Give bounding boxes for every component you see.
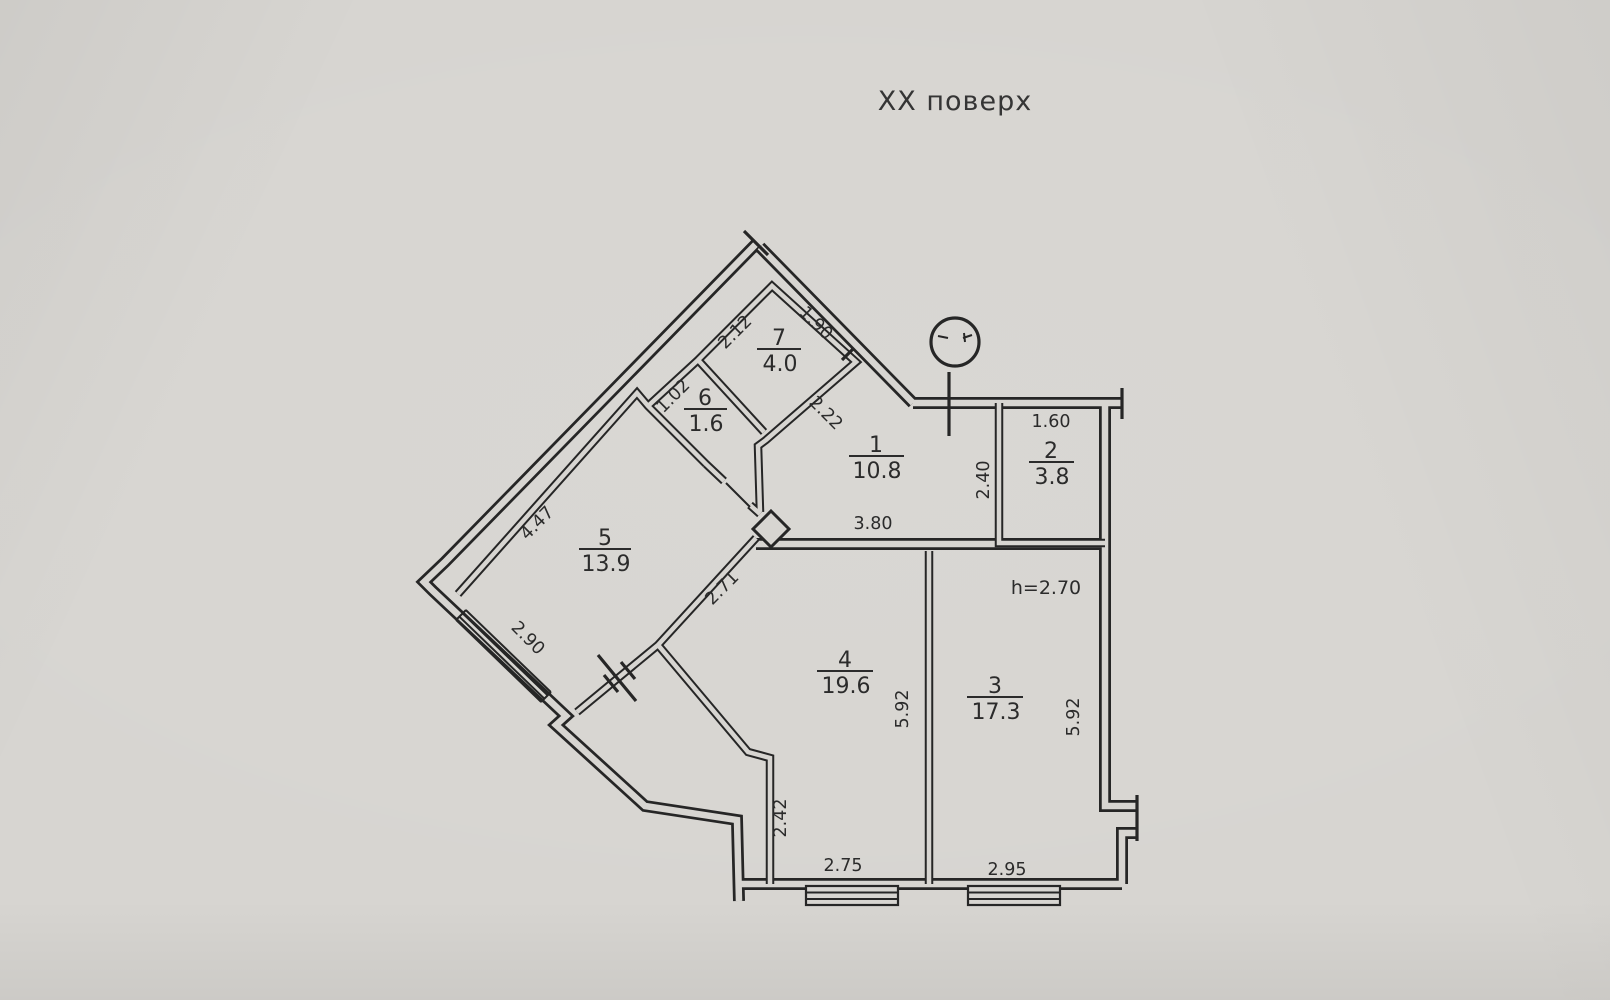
dim-2-71: 2.71: [702, 568, 744, 610]
room4-number: 4: [838, 648, 852, 673]
room6-number: 6: [698, 386, 712, 411]
window-room3: [968, 886, 1060, 905]
room1-area: 10.8: [853, 459, 902, 484]
dimension-labels: 2.12 1.90 1.02 2.22 4.47 2.90 2.71 1.60 …: [507, 303, 1084, 880]
dim-2-90: 2.90: [507, 618, 549, 660]
dim-2-40: 2.40: [974, 461, 994, 500]
dim-2-12: 2.12: [715, 312, 757, 354]
room3-number: 3: [988, 674, 1002, 699]
dim-1-60: 1.60: [1032, 412, 1071, 432]
room5-area: 13.9: [582, 552, 631, 577]
room2-number: 2: [1044, 439, 1058, 464]
dim-2-42: 2.42: [771, 799, 791, 838]
dim-5-92-right: 5.92: [1064, 698, 1084, 737]
page-title: XX поверх: [878, 86, 1032, 117]
dim-5-92-left: 5.92: [893, 690, 913, 729]
room2-area: 3.8: [1035, 465, 1070, 490]
room7-area: 4.0: [763, 352, 798, 377]
window-room4: [806, 886, 898, 905]
ceiling-height-label: h=2.70: [1011, 577, 1081, 599]
floor-plan-drawing: 7 4.0 6 1.6 5 13.9 1 10.8 2 3.8 4 19.6 3…: [0, 0, 1610, 1000]
room6-area: 1.6: [689, 412, 724, 437]
dim-2-95: 2.95: [988, 860, 1027, 880]
door-leaf: [726, 483, 750, 507]
room4-area: 19.6: [822, 674, 871, 699]
dim-3-80: 3.80: [854, 514, 893, 534]
room7-number: 7: [772, 326, 786, 351]
dim-2-75: 2.75: [824, 856, 863, 876]
scanned-floor-plan-page: { "title": "XX поверх", "floor_plan": { …: [0, 0, 1610, 1000]
room1-number: 1: [869, 433, 883, 458]
vent-circle-icon: [931, 318, 979, 366]
room5-number: 5: [598, 526, 612, 551]
dim-4-47: 4.47: [517, 503, 559, 545]
room3-area: 17.3: [972, 700, 1021, 725]
